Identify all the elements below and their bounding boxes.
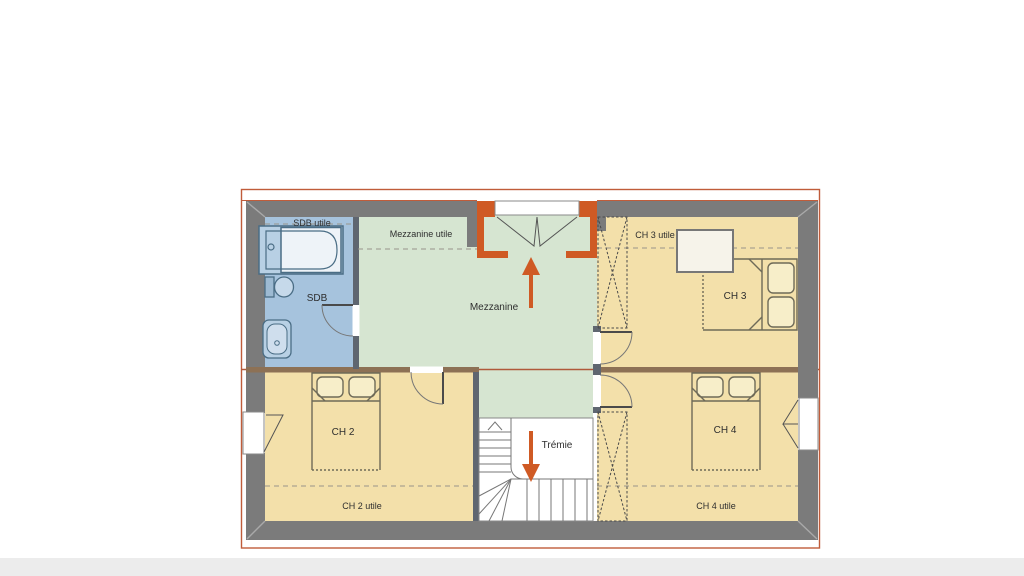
bathroom-wall-upper: [353, 217, 359, 305]
wall-right-lower: [798, 450, 818, 540]
ch4-door-recess: [593, 375, 601, 407]
central-wall-seg2: [593, 364, 601, 375]
label-mezzanine: Mezzanine: [470, 302, 519, 313]
stairhall-wall: [473, 372, 479, 521]
label-ch3-utile: CH 3 utile: [635, 230, 675, 240]
dormer-wall-right: [590, 201, 597, 258]
label-sdb: SDB: [307, 293, 328, 304]
label-ch4-utile: CH 4 utile: [696, 501, 736, 511]
wall-top-right: [597, 201, 798, 217]
floor-plan-page: SDB utile Mezzanine utile CH 3 utile SDB…: [0, 0, 1024, 576]
dormer-window-glass: [495, 201, 579, 215]
label-mezzanine-utile: Mezzanine utile: [390, 229, 453, 239]
label-ch3: CH 3: [724, 291, 747, 302]
ch3-door-recess: [593, 332, 601, 364]
mid-wall-right: [593, 367, 798, 373]
sink: [263, 320, 291, 358]
central-wall: [593, 326, 601, 413]
label-sdb-utile: SDB utile: [293, 218, 331, 228]
label-ch2: CH 2: [332, 427, 355, 438]
wall-top-left: [246, 201, 477, 217]
floor-plan-drawing: SDB utile Mezzanine utile CH 3 utile SDB…: [0, 0, 1024, 576]
toilet: [265, 277, 294, 297]
wall-bottom: [246, 521, 798, 540]
dormer-wall-left: [477, 201, 484, 258]
bathroom-wall: [353, 217, 360, 369]
wall-right-upper: [798, 201, 818, 398]
central-wall-seg1: [593, 326, 601, 332]
page-bottom-edge: [0, 558, 1024, 576]
dormer-wall-bottom-left: [477, 251, 508, 258]
dormer-jamb-left: [467, 201, 477, 247]
bathroom-wall-lower: [353, 336, 359, 369]
dormer-wall-bottom-right: [566, 251, 597, 258]
ch4-window-glass: [799, 398, 818, 450]
mid-wall-center: [443, 367, 479, 373]
bathroom-door-recess: [353, 305, 360, 336]
ch2-door-recess: [410, 367, 443, 374]
label-ch4: CH 4: [714, 425, 737, 436]
bathtub: [259, 226, 343, 274]
label-ch2-utile: CH 2 utile: [342, 501, 382, 511]
ch2-window-glass: [243, 412, 264, 454]
label-tremie: Trémie: [542, 440, 573, 451]
mid-wall-left: [246, 367, 410, 373]
landing-floor: [479, 369, 593, 418]
wall-left-lower: [246, 453, 265, 540]
ch3-dresser: [677, 230, 733, 272]
